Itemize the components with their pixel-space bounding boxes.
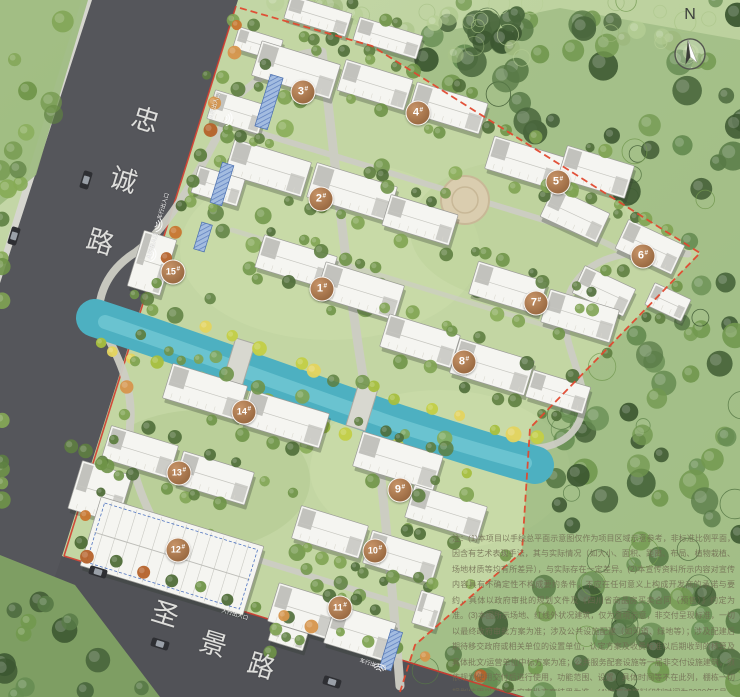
building-badge: 11# bbox=[328, 596, 353, 621]
building-badge: 1# bbox=[310, 277, 335, 302]
site-plan: 1#2#3#4#5#6#7#8#9#10#11#12#13#14#15# 忠诚路… bbox=[0, 0, 740, 697]
building-badge: 2# bbox=[309, 187, 334, 212]
north-arrow: N bbox=[660, 6, 720, 84]
building-badge: 7# bbox=[524, 291, 549, 316]
building-badge: 14# bbox=[232, 400, 257, 425]
building-badge: 5# bbox=[546, 170, 571, 195]
building-badge: 6# bbox=[631, 244, 656, 269]
building-badge: 13# bbox=[167, 461, 192, 486]
disclaimer-text: 注：(1)本项目以手绘总平面示意图仅作为项目区域示意参考，非标准比例平面，因含有… bbox=[452, 531, 735, 691]
building-badge: 12# bbox=[166, 538, 191, 563]
building-badge: 4# bbox=[406, 101, 431, 126]
building-badge: 10# bbox=[363, 539, 388, 564]
building-badge: 15# bbox=[161, 260, 186, 285]
north-letter: N bbox=[684, 6, 696, 24]
building-badge: 9# bbox=[388, 478, 413, 503]
building-badge: 8# bbox=[452, 350, 477, 375]
building-badge: 3# bbox=[291, 80, 316, 105]
